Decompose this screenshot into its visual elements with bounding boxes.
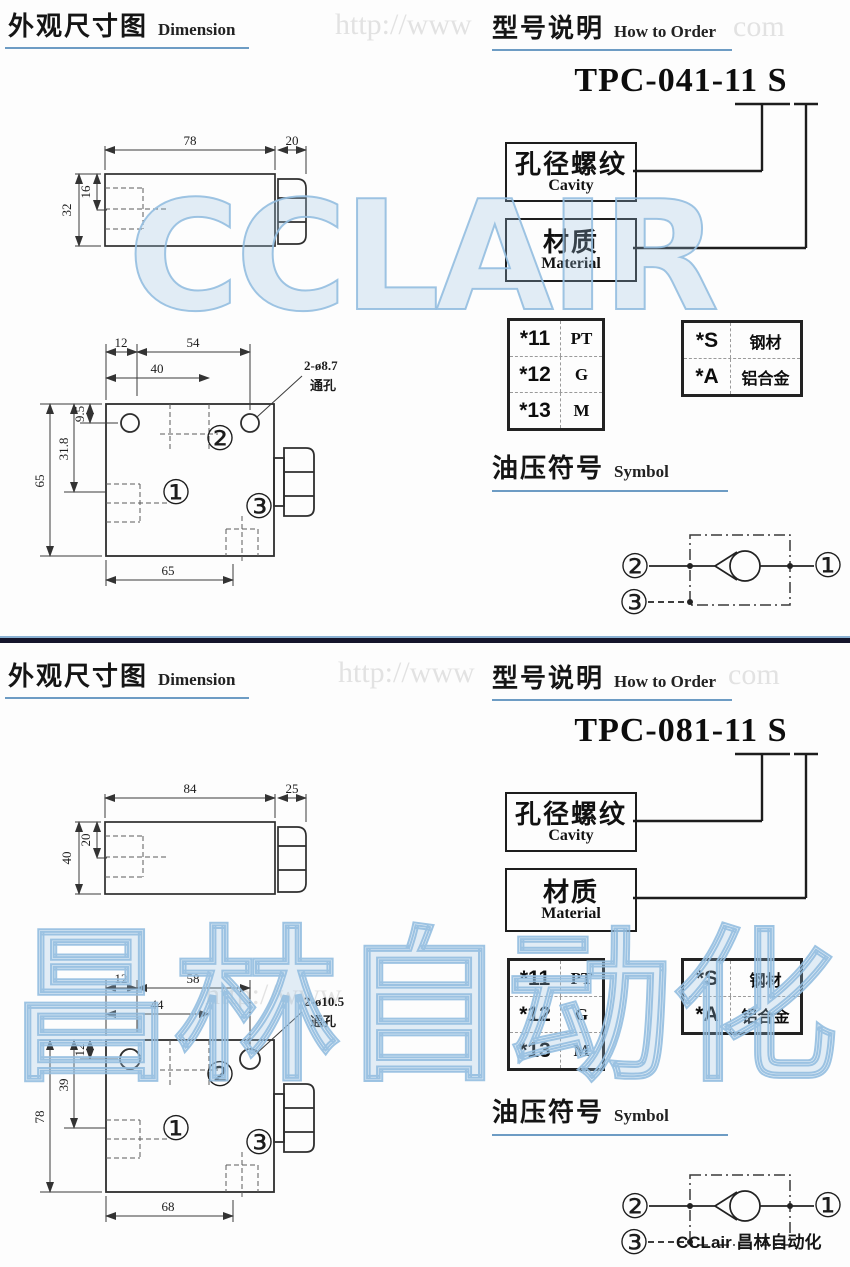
dim-height: 32 [59, 204, 74, 217]
option-value: 钢材 [731, 961, 800, 996]
order-title: 型号说明 How to Order [492, 658, 716, 695]
dim-height: 65 [32, 475, 47, 488]
material-label-en: Material [541, 256, 601, 273]
table-row: *11 PT [510, 321, 602, 357]
dim-bore: 20 [78, 834, 93, 847]
port-3-label: ③ [244, 487, 274, 527]
title-underline [492, 1134, 728, 1136]
dim-offset-y: 12 [72, 1044, 87, 1057]
dim-length: 78 [184, 133, 197, 148]
order-title-en: How to Order [614, 22, 716, 42]
thread-options-table: *11 PT *12 G *13 M [507, 318, 605, 431]
check-valve-symbol: ② ① ③ [588, 503, 848, 635]
port-1-label: ① [813, 546, 843, 586]
hole-callout: 2-ø10.5 [304, 994, 345, 1009]
section-tpc-041: 外观尺寸图 Dimension 型号说明 How to Order TPC-04… [0, 0, 850, 633]
dimension-title: 外观尺寸图 Dimension [8, 656, 235, 693]
port-2-label: ② [620, 1187, 650, 1227]
option-value: G [561, 357, 602, 392]
dim-bore: 16 [78, 185, 93, 199]
dim-height: 40 [59, 852, 74, 865]
dimension-title-zh: 外观尺寸图 [8, 656, 148, 693]
dim-offset-x: 12 [115, 971, 128, 986]
material-label-zh: 材质 [543, 878, 599, 906]
symbol-title: 油压符号 Symbol [492, 448, 669, 485]
side-view-drawing: 84 25 40 20 [50, 774, 350, 924]
option-code: *12 [510, 357, 561, 392]
option-code: *12 [510, 997, 561, 1032]
order-title-zh: 型号说明 [492, 8, 604, 45]
dimension-title-zh: 外观尺寸图 [8, 6, 148, 43]
cavity-box: 孔径螺纹 Cavity [505, 142, 637, 202]
hole-callout-2: 通孔 [310, 1014, 336, 1029]
table-row: *S 钢材 [684, 961, 800, 997]
title-underline [5, 47, 249, 49]
option-value: M [561, 1033, 602, 1068]
symbol-title-en: Symbol [614, 462, 669, 482]
table-row: *A 铝合金 [684, 997, 800, 1032]
title-underline [5, 697, 249, 699]
option-value: 铝合金 [731, 359, 800, 394]
brand-footer: CCLair 昌林自动化 [676, 1228, 821, 1253]
option-code: *13 [510, 393, 561, 428]
option-value: M [561, 393, 602, 428]
dim-length: 84 [184, 781, 198, 796]
block-view-drawing: 12 54 40 9.5 31.8 65 65 2-ø8.7 通孔 ② ① ③ [18, 316, 368, 626]
material-options-table: *S 钢材 *A 铝合金 [681, 320, 803, 397]
table-row: *11 PT [510, 961, 602, 997]
option-code: *11 [510, 961, 561, 996]
option-code: *A [684, 997, 731, 1032]
port-1-label: ① [161, 473, 191, 513]
symbol-title: 油压符号 Symbol [492, 1092, 669, 1129]
order-title-zh: 型号说明 [492, 658, 604, 695]
dim-height: 78 [32, 1111, 47, 1124]
dim-mid-x: 40 [151, 361, 164, 376]
table-row: *A 铝合金 [684, 359, 800, 394]
dim-mid-x: 44 [151, 997, 165, 1012]
option-code: *S [684, 961, 731, 996]
dimension-title: 外观尺寸图 Dimension [8, 6, 235, 43]
symbol-title-zh: 油压符号 [492, 448, 604, 485]
table-row: *13 M [510, 393, 602, 428]
dim-mid-y: 31.8 [56, 438, 71, 461]
dim-width: 65 [162, 563, 175, 578]
dim-nut-width: 25 [286, 781, 299, 796]
port-2-label: ② [205, 419, 235, 459]
hole-callout: 2-ø8.7 [304, 358, 338, 373]
datasheet-page: http://www com http://www com http://www… [0, 0, 850, 1267]
option-code: *13 [510, 1033, 561, 1068]
block-view-drawing: 12 58 44 12 39 78 68 2-ø10.5 通孔 ② ① ③ [18, 952, 368, 1262]
model-number: TPC-041-11 S [535, 62, 827, 100]
cavity-box: 孔径螺纹 Cavity [505, 792, 637, 852]
dim-nut-width: 20 [286, 133, 299, 148]
symbol-title-en: Symbol [614, 1106, 669, 1126]
table-row: *12 G [510, 357, 602, 393]
option-value: G [561, 997, 602, 1032]
material-box: 材质 Material [505, 218, 637, 282]
hole-callout-2: 通孔 [310, 378, 336, 393]
dim-span-x: 58 [187, 971, 200, 986]
port-3-label: ③ [619, 1223, 649, 1263]
dim-offset-x: 12 [115, 335, 128, 350]
cavity-label-en: Cavity [548, 828, 593, 845]
side-view-drawing: 78 20 32 16 [50, 126, 350, 276]
material-label-zh: 材质 [543, 228, 599, 256]
section-divider [0, 636, 850, 643]
port-3-label: ③ [244, 1123, 274, 1163]
port-1-label: ① [813, 1186, 843, 1226]
dim-mid-y: 39 [56, 1079, 71, 1092]
material-box: 材质 Material [505, 868, 637, 932]
dimension-title-en: Dimension [158, 670, 235, 690]
cavity-label-en: Cavity [548, 178, 593, 195]
port-3-label: ③ [619, 583, 649, 623]
dim-offset-y: 9.5 [72, 406, 87, 422]
thread-options-table: *11 PT *12 G *13 M [507, 958, 605, 1071]
title-underline [492, 699, 732, 701]
dim-width: 68 [162, 1199, 175, 1214]
option-value: 钢材 [731, 323, 800, 358]
title-underline [492, 49, 732, 51]
title-underline [492, 490, 728, 492]
model-number: TPC-081-11 S [535, 712, 827, 750]
option-value: 铝合金 [731, 997, 800, 1032]
order-title-en: How to Order [614, 672, 716, 692]
dimension-title-en: Dimension [158, 20, 235, 40]
material-label-en: Material [541, 906, 601, 923]
material-options-table: *S 钢材 *A 铝合金 [681, 958, 803, 1035]
cavity-label-zh: 孔径螺纹 [515, 800, 627, 828]
table-row: *13 M [510, 1033, 602, 1068]
option-value: PT [561, 321, 602, 356]
order-title: 型号说明 How to Order [492, 8, 716, 45]
option-value: PT [561, 961, 602, 996]
dim-span-x: 54 [187, 335, 201, 350]
symbol-title-zh: 油压符号 [492, 1092, 604, 1129]
cavity-label-zh: 孔径螺纹 [515, 150, 627, 178]
port-2-label: ② [620, 547, 650, 587]
port-2-label: ② [205, 1055, 235, 1095]
table-row: *S 钢材 [684, 323, 800, 359]
section-tpc-081: 外观尺寸图 Dimension 型号说明 How to Order TPC-08… [0, 634, 850, 1267]
option-code: *11 [510, 321, 561, 356]
option-code: *S [684, 323, 731, 358]
table-row: *12 G [510, 997, 602, 1033]
option-code: *A [684, 359, 731, 394]
port-1-label: ① [161, 1109, 191, 1149]
